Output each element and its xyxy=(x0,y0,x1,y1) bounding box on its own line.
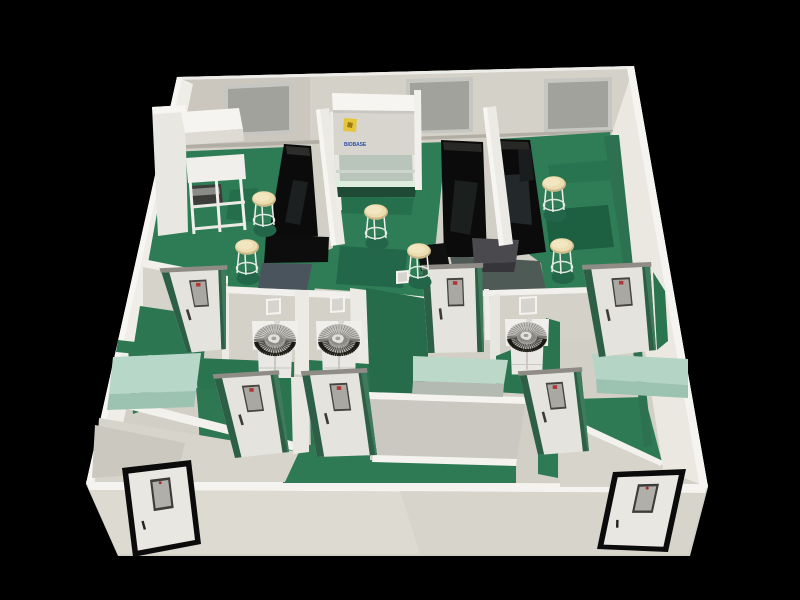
svg-text:BIOBASE: BIOBASE xyxy=(344,142,367,148)
